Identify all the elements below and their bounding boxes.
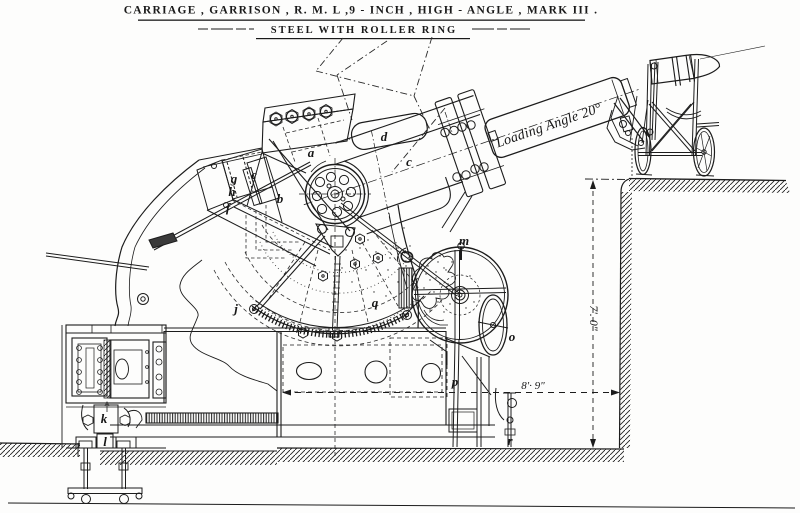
svg-text:l: l [103, 434, 107, 449]
svg-text:CARRIAGE , GARRISON , R. M. L: CARRIAGE , GARRISON , R. M. L ,9 - INCH … [124, 5, 599, 17]
svg-text:h: h [228, 184, 235, 199]
svg-text:7'. 0": 7'. 0" [587, 305, 601, 332]
svg-text:8'· 9": 8'· 9" [521, 380, 545, 392]
svg-text:c: c [406, 154, 412, 169]
svg-text:k: k [101, 411, 108, 426]
svg-text:m: m [459, 233, 469, 248]
svg-text:a: a [308, 145, 315, 160]
svg-text:d: d [381, 129, 388, 144]
svg-text:c: c [251, 167, 257, 182]
svg-text:STEEL WITH ROLLER RING: STEEL WITH ROLLER RING [271, 25, 457, 36]
svg-text:o: o [509, 329, 516, 344]
svg-text:q: q [372, 295, 379, 310]
svg-text:p: p [451, 374, 459, 389]
svg-text:b: b [277, 191, 284, 206]
